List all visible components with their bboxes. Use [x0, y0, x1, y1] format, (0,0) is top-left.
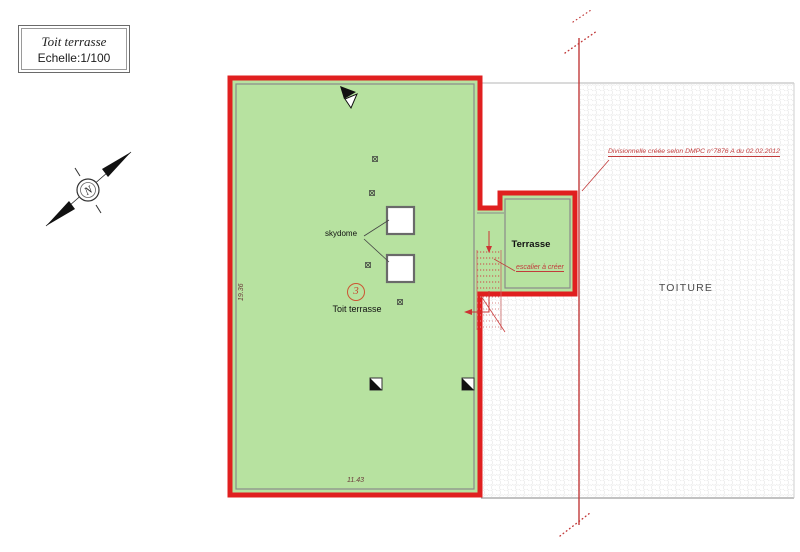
height-dimension: 19.36 — [238, 283, 245, 301]
north-arrow-icon: N — [46, 152, 131, 226]
skydome-2 — [387, 255, 414, 282]
skydome-1 — [387, 207, 414, 234]
floor-plan-page: N Toit terrasse Echelle:1/100 skydome 3 … — [0, 0, 800, 552]
title-block-inner: Toit terrasse Echelle:1/100 — [21, 28, 127, 70]
lot-number: 3 — [346, 285, 366, 297]
width-dimension: 11.43 — [347, 477, 364, 484]
plan-drawing: N — [0, 0, 800, 552]
roof-label: TOITURE — [648, 282, 724, 294]
terrace-label: Terrasse — [505, 239, 557, 250]
plan-title: Toit terrasse — [42, 34, 107, 50]
plan-scale: Echelle:1/100 — [38, 51, 111, 65]
skydome-label: skydome — [325, 229, 357, 238]
stair-note: escalier à créer — [516, 264, 564, 272]
title-block: Toit terrasse Echelle:1/100 — [18, 25, 130, 73]
main-area-label: Toit terrasse — [320, 304, 394, 314]
division-annotation: Divisionnelle créée selon DMPC n°7876 A … — [608, 148, 780, 157]
